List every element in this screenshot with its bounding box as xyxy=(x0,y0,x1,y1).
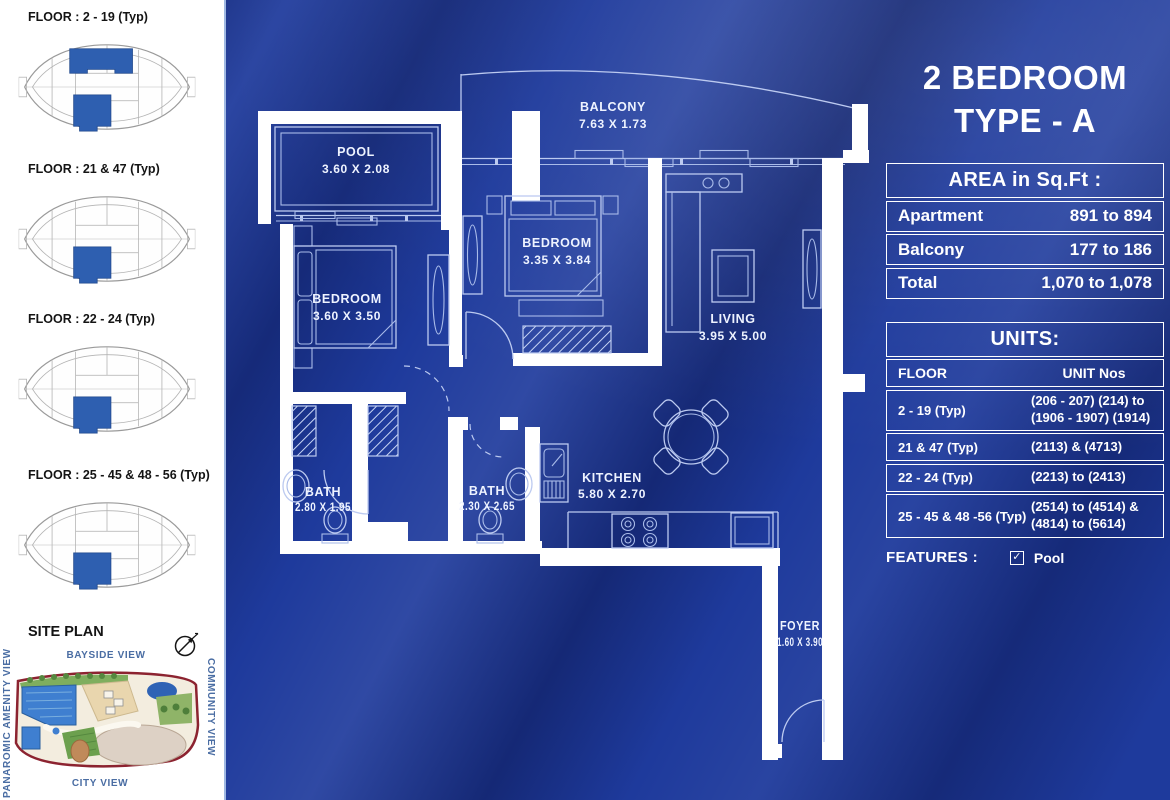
units-row: 21 & 47 (Typ) (2113) & (4713) xyxy=(886,433,1164,461)
sidebar: FLOOR : 2 - 19 (Typ) FLOOR : 21 & 47 (Ty… xyxy=(0,0,226,800)
units-col-nos: UNIT Nos xyxy=(1029,362,1163,384)
room-bath1: BATH 2.80 X 1.95 xyxy=(295,485,351,514)
svg-text:BATH: BATH xyxy=(469,484,505,498)
units-floor: 22 - 24 (Typ) xyxy=(887,470,1029,485)
room-living: LIVING 3.95 X 5.00 xyxy=(699,312,767,343)
siteplan-map xyxy=(10,663,204,775)
keyplan-1 xyxy=(14,36,200,138)
keyplan-label-4: FLOOR : 25 - 45 & 48 - 56 (Typ) xyxy=(28,468,210,482)
room-kitchen: KITCHEN 5.80 X 2.70 xyxy=(578,471,646,501)
area-row-value: 1,070 to 1,078 xyxy=(1041,273,1152,293)
svg-text:FOYER: FOYER xyxy=(780,619,820,633)
units-row: 2 - 19 (Typ) (206 - 207) (214) to (1906 … xyxy=(886,390,1164,431)
svg-text:POOL: POOL xyxy=(337,145,375,159)
area-row-apartment: Apartment 891 to 894 xyxy=(886,201,1164,232)
area-row-value: 891 to 894 xyxy=(1070,206,1152,226)
room-bedroom1: BEDROOM 3.60 X 3.50 xyxy=(312,292,381,323)
info-panel: 2 BEDROOM TYPE - A AREA in Sq.Ft : Apart… xyxy=(886,0,1164,566)
svg-text:3.95 X 5.00: 3.95 X 5.00 xyxy=(699,329,767,343)
svg-text:LIVING: LIVING xyxy=(710,312,755,326)
units-nos: (2514) to (4514) & (4814) to (5614) xyxy=(1029,497,1163,535)
svg-text:3.35 X 3.84: 3.35 X 3.84 xyxy=(523,253,591,267)
area-row-label: Apartment xyxy=(898,206,983,226)
units-floor: 2 - 19 (Typ) xyxy=(887,403,1029,418)
units-table-header: UNITS: xyxy=(886,322,1164,357)
keyplan-label-2: FLOOR : 21 & 47 (Typ) xyxy=(28,162,160,176)
units-table: UNITS: FLOOR UNIT Nos 2 - 19 (Typ) (206 … xyxy=(886,322,1164,539)
svg-text:1.60 X 3.90: 1.60 X 3.90 xyxy=(777,635,823,649)
svg-text:7.63 X 1.73: 7.63 X 1.73 xyxy=(579,117,647,131)
area-row-total: Total 1,070 to 1,078 xyxy=(886,268,1164,299)
svg-text:2.80 X 1.95: 2.80 X 1.95 xyxy=(295,500,351,514)
units-row: 22 - 24 (Typ) (2213) to (2413) xyxy=(886,464,1164,492)
walls xyxy=(258,104,869,760)
svg-text:KITCHEN: KITCHEN xyxy=(582,471,642,485)
room-foyer: FOYER 1.60 X 3.90 xyxy=(777,619,823,649)
units-nos: (206 - 207) (214) to (1906 - 1907) (1914… xyxy=(1029,391,1163,429)
room-bedroom2: BEDROOM 3.35 X 3.84 xyxy=(522,236,591,267)
title-line-2: TYPE - A xyxy=(886,99,1164,142)
svg-text:BALCONY: BALCONY xyxy=(580,100,646,114)
units-nos: (2113) & (4713) xyxy=(1029,437,1163,458)
svg-text:2.30 X 2.65: 2.30 X 2.65 xyxy=(459,499,515,513)
area-row-balcony: Balcony 177 to 186 xyxy=(886,234,1164,265)
title-line-1: 2 BEDROOM xyxy=(886,56,1164,99)
view-label-top: BAYSIDE VIEW xyxy=(0,650,212,661)
units-row: 25 - 45 & 48 -56 (Typ) (2514) to (4514) … xyxy=(886,494,1164,538)
svg-text:3.60 X 3.50: 3.60 X 3.50 xyxy=(313,309,381,323)
kitchen-furniture xyxy=(540,444,778,548)
area-table: AREA in Sq.Ft : Apartment 891 to 894 Bal… xyxy=(886,163,1164,299)
keyplan-3 xyxy=(14,338,200,440)
svg-text:3.60 X 2.08: 3.60 X 2.08 xyxy=(322,162,390,176)
units-col-floor: FLOOR xyxy=(887,365,1029,381)
features-row: FEATURES : ✓ Pool xyxy=(886,549,1164,566)
keyplan-2 xyxy=(14,188,200,290)
keyplan-4 xyxy=(14,494,200,596)
view-label-bottom: CITY VIEW xyxy=(0,778,200,789)
page: POOL 3.60 X 2.08 BALCONY 7.63 X 1.73 BED… xyxy=(0,0,1170,800)
view-label-left: PANAROMIC AMENITY VIEW xyxy=(2,648,13,798)
siteplan-title: SITE PLAN xyxy=(28,624,104,640)
view-label-right: COMMUNITY VIEW xyxy=(205,658,216,788)
units-floor: 21 & 47 (Typ) xyxy=(887,440,1029,455)
units-floor: 25 - 45 & 48 -56 (Typ) xyxy=(887,509,1029,524)
svg-text:BEDROOM: BEDROOM xyxy=(522,236,591,250)
room-balcony: BALCONY 7.63 X 1.73 xyxy=(579,100,647,131)
svg-text:BATH: BATH xyxy=(305,485,341,499)
keyplan-label-1: FLOOR : 2 - 19 (Typ) xyxy=(28,10,148,24)
units-table-columns: FLOOR UNIT Nos xyxy=(886,359,1164,387)
keyplan-label-3: FLOOR : 22 - 24 (Typ) xyxy=(28,312,155,326)
page-title: 2 BEDROOM TYPE - A xyxy=(886,56,1164,142)
room-pool: POOL 3.60 X 2.08 xyxy=(322,145,390,176)
svg-text:5.80 X 2.70: 5.80 X 2.70 xyxy=(578,487,646,501)
area-table-header: AREA in Sq.Ft : xyxy=(886,163,1164,198)
features-label: FEATURES : xyxy=(886,549,978,566)
pool-outline xyxy=(275,127,441,225)
area-row-value: 177 to 186 xyxy=(1070,240,1152,260)
feature-pool: Pool xyxy=(1034,550,1064,566)
checkbox-checked-icon: ✓ xyxy=(1010,551,1024,565)
area-row-label: Balcony xyxy=(898,240,964,260)
area-row-label: Total xyxy=(898,273,937,293)
bedroom2-furniture xyxy=(463,196,618,353)
units-nos: (2213) to (2413) xyxy=(1029,467,1163,488)
svg-text:BEDROOM: BEDROOM xyxy=(312,292,381,306)
